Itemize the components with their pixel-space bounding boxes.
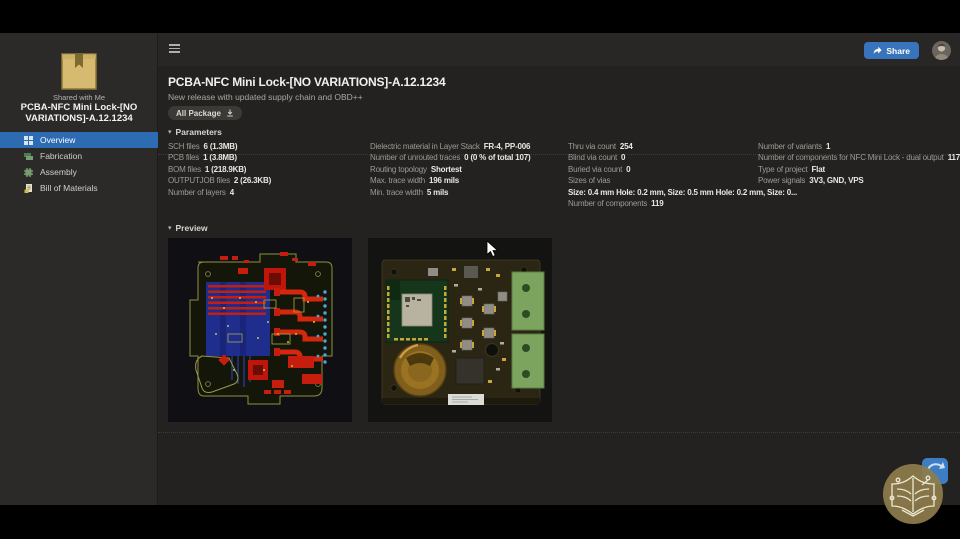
parameter-row: PCB files1 (3.8MB) <box>168 152 271 163</box>
download-icon <box>226 109 234 117</box>
parameter-label: Power signals <box>758 176 805 185</box>
parameter-value: 4 <box>230 188 234 197</box>
parameter-value: 3V3, GND, VPS <box>809 176 863 185</box>
parameter-row: Number of layers4 <box>168 187 271 198</box>
parameter-row: SCH files6 (1.3MB) <box>168 141 271 152</box>
parameter-value: 119 <box>651 199 663 208</box>
parameter-row: Type of projectFlat <box>758 164 960 175</box>
collapse-caret-icon: ▾ <box>168 128 172 136</box>
parameter-value: 254 <box>620 142 633 151</box>
sidebar-item-overview[interactable]: Overview <box>0 132 158 148</box>
parameters-column: SCH files6 (1.3MB)PCB files1 (3.8MB)BOM … <box>168 141 271 198</box>
parameter-label: Number of components <box>568 199 647 208</box>
sidebar-item-label: Fabrication <box>40 151 82 161</box>
parameter-label: Buried via count <box>568 165 622 174</box>
parameter-label: SCH files <box>168 142 200 151</box>
fabrication-layers-icon <box>24 152 33 161</box>
parameter-value: FR-4, PP-006 <box>484 142 531 151</box>
shared-with-label: Shared with Me <box>0 93 158 102</box>
overview-grid-icon <box>24 136 33 145</box>
section-divider <box>158 432 960 433</box>
preview-section-label: Preview <box>176 223 208 233</box>
pcb-2d-layout-image <box>168 238 352 422</box>
parameter-value: 0 (0 % of total 107) <box>464 153 530 162</box>
parameter-row: Number of variants1 <box>758 141 960 152</box>
release-note: New release with updated supply chain an… <box>168 92 363 102</box>
parameter-value: 0 <box>626 165 630 174</box>
parameter-row: BOM files1 (218.9KB) <box>168 164 271 175</box>
main-content: Share PCBA-NFC Mini Lock-[NO VARIATIONS]… <box>158 33 960 505</box>
sidebar-item-bill-of-materials[interactable]: Bill of Materials <box>0 180 158 196</box>
package-box-icon <box>59 50 99 94</box>
all-package-download-button[interactable]: All Package <box>168 106 242 120</box>
sidebar-item-assembly[interactable]: Assembly <box>0 164 158 180</box>
parameter-row: Number of components for NFC Mini Lock -… <box>758 152 960 163</box>
parameter-value: Flat <box>811 165 824 174</box>
parameter-label: Number of components for NFC Mini Lock -… <box>758 153 944 162</box>
book-circuit-logo <box>876 452 956 528</box>
parameter-label: Thru via count <box>568 142 616 151</box>
parameter-label: Type of project <box>758 165 807 174</box>
preview-section-header[interactable]: ▾ Preview <box>168 223 208 233</box>
parameter-row: Min. trace width5 mils <box>370 187 530 198</box>
parameter-value: Size: 0.4 mm Hole: 0.2 mm, Size: 0.5 mm … <box>568 188 797 197</box>
parameter-row: Number of components119 <box>568 198 797 209</box>
bottom-letterbox <box>0 505 960 539</box>
parameter-label: PCB files <box>168 153 199 162</box>
parameter-row: Routing topologyShortest <box>370 164 530 175</box>
parameter-row: Number of unrouted traces0 (0 % of total… <box>370 152 530 163</box>
parameter-row: OUTPUTJOB files2 (26.3KB) <box>168 175 271 186</box>
parameter-label: BOM files <box>168 165 201 174</box>
all-package-label: All Package <box>176 109 221 118</box>
parameter-value: 6 (1.3MB) <box>204 142 238 151</box>
parameter-label: Blind via count <box>568 153 617 162</box>
parameter-row: Size: 0.4 mm Hole: 0.2 mm, Size: 0.5 mm … <box>568 187 797 198</box>
top-letterbox <box>0 0 960 33</box>
sidebar-item-fabrication[interactable]: Fabrication <box>0 148 158 164</box>
page-title: PCBA-NFC Mini Lock-[NO VARIATIONS]-A.12.… <box>168 75 445 89</box>
parameter-label: Number of layers <box>168 188 226 197</box>
pcb-3d-render-image <box>368 238 552 422</box>
parameter-label: Number of unrouted traces <box>370 153 460 162</box>
mouse-cursor <box>486 240 498 258</box>
parameter-label: Max. trace width <box>370 176 425 185</box>
parameter-value: 1 (3.8MB) <box>203 153 237 162</box>
parameters-section-label: Parameters <box>176 127 222 137</box>
sidebar-item-label: Assembly <box>40 167 77 177</box>
share-button-label: Share <box>886 46 910 56</box>
parameter-value: 1 (218.9KB) <box>205 165 246 174</box>
parameter-value: 0 <box>621 153 625 162</box>
sidebar-nav: Overview Fabrication Assembly <box>0 132 158 196</box>
parameter-row: Power signals3V3, GND, VPS <box>758 175 960 186</box>
hamburger-menu-icon[interactable] <box>169 44 180 55</box>
sidebar-item-label: Bill of Materials <box>40 183 98 193</box>
collapse-caret-icon: ▾ <box>168 224 172 232</box>
app-window: Shared with Me PCBA-NFC Mini Lock-[NO VA… <box>0 33 960 505</box>
top-toolbar: Share <box>158 33 960 66</box>
assembly-chip-icon <box>24 168 33 177</box>
share-arrow-icon <box>873 46 882 55</box>
parameter-value: 117 <box>948 153 960 162</box>
parameter-value: 2 (26.3KB) <box>234 176 271 185</box>
parameters-column: Number of variants1Number of components … <box>758 141 960 187</box>
parameters-section-header[interactable]: ▾ Parameters <box>168 127 222 137</box>
share-button[interactable]: Share <box>864 42 919 59</box>
pcb-3d-render-preview[interactable] <box>368 238 552 422</box>
parameter-value: 1 <box>826 142 830 151</box>
pcb-2d-layout-preview[interactable] <box>168 238 352 422</box>
project-sidebar: Shared with Me PCBA-NFC Mini Lock-[NO VA… <box>0 33 158 505</box>
parameter-label: Sizes of vias <box>568 176 610 185</box>
avatar-photo <box>932 41 951 60</box>
parameter-value: 5 mils <box>427 188 448 197</box>
parameter-row: Dielectric material in Layer StackFR-4, … <box>370 141 530 152</box>
parameters-column: Dielectric material in Layer StackFR-4, … <box>370 141 530 198</box>
parameter-label: Number of variants <box>758 142 822 151</box>
parameter-value: Shortest <box>431 165 462 174</box>
parameter-value: 196 mils <box>429 176 459 185</box>
parameter-label: Routing topology <box>370 165 427 174</box>
sidebar-project-title: PCBA-NFC Mini Lock-[NO VARIATIONS]-A.12.… <box>3 102 155 124</box>
user-avatar[interactable] <box>932 41 951 60</box>
sidebar-item-label: Overview <box>40 135 75 145</box>
parameter-label: OUTPUTJOB files <box>168 176 230 185</box>
parameter-label: Min. trace width <box>370 188 423 197</box>
bom-document-icon <box>24 184 33 193</box>
parameter-row: Max. trace width196 mils <box>370 175 530 186</box>
parameter-label: Dielectric material in Layer Stack <box>370 142 480 151</box>
